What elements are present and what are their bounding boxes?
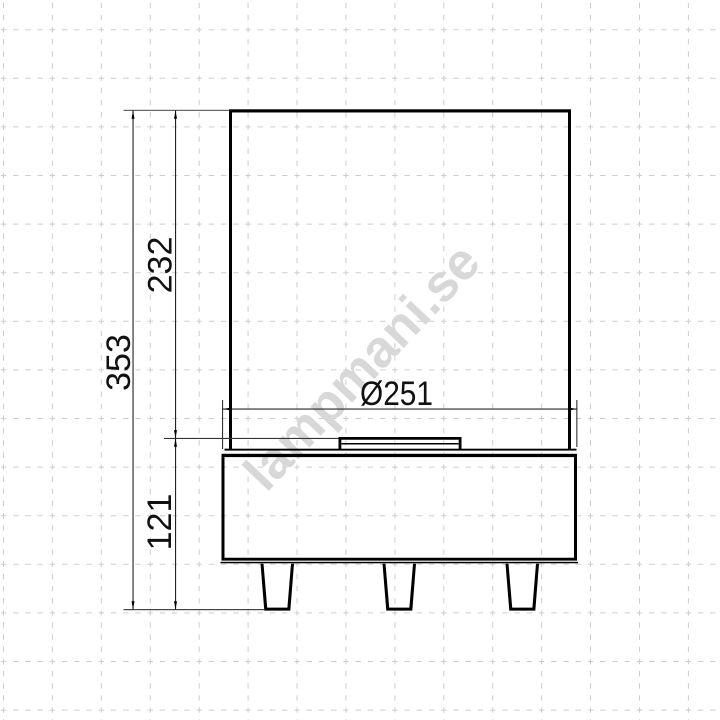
svg-text:232: 232: [141, 237, 179, 294]
svg-text:Ø251: Ø251: [360, 375, 433, 413]
svg-text:121: 121: [141, 494, 179, 551]
svg-text:353: 353: [100, 334, 138, 391]
